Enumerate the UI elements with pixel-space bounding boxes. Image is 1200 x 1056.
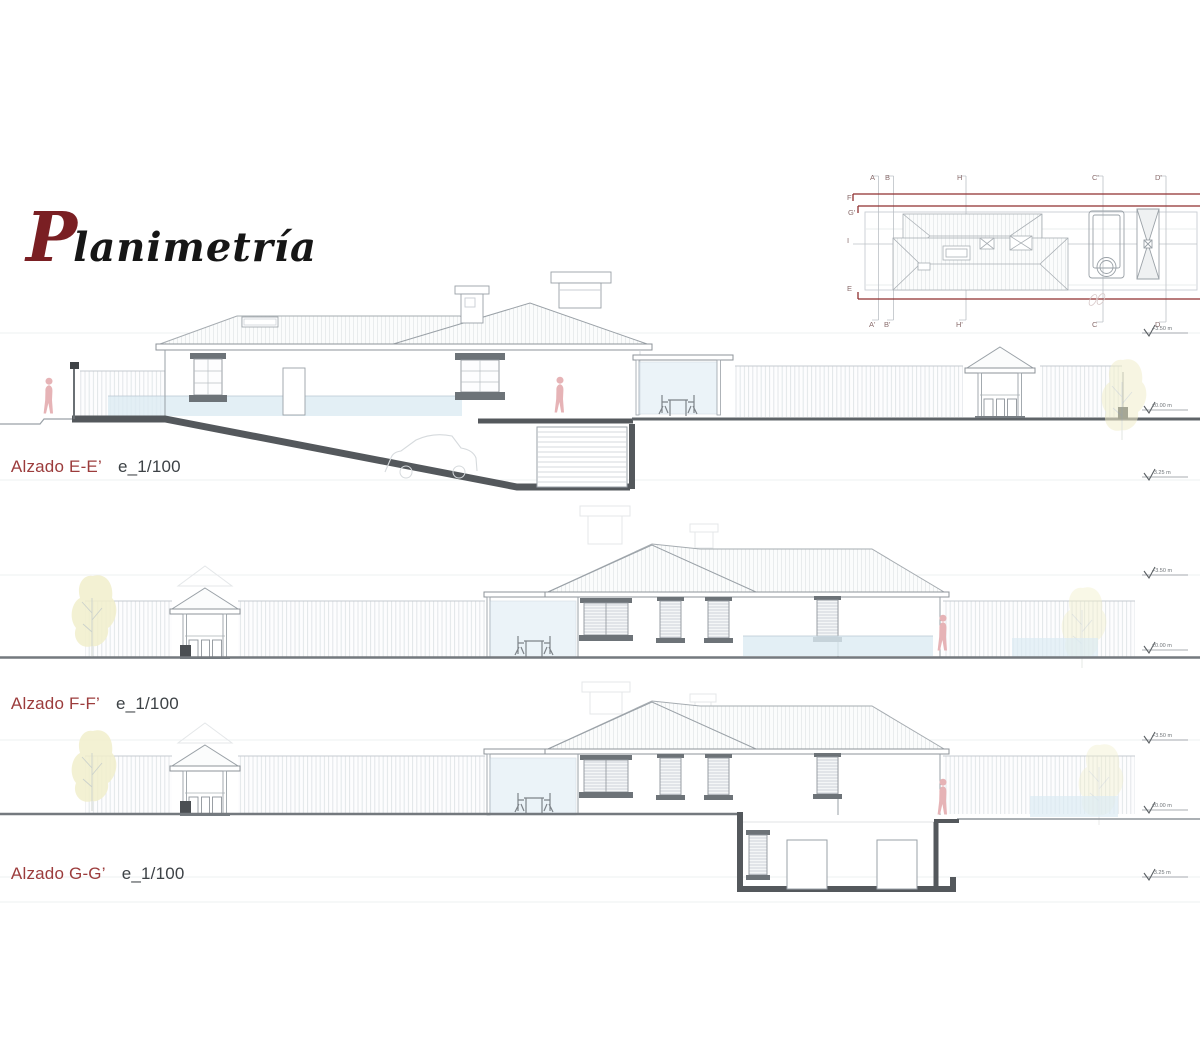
section-label: C' bbox=[1092, 173, 1099, 182]
person-figure bbox=[938, 779, 947, 815]
pergola-plan bbox=[1137, 209, 1159, 279]
level-label: +3.50 m bbox=[1152, 326, 1172, 332]
elevation-name: Alzado G-G’ bbox=[11, 864, 106, 883]
elevation-scale: e_1/100 bbox=[122, 864, 185, 883]
person-figure bbox=[555, 377, 564, 413]
pool-water bbox=[1012, 638, 1098, 657]
basement-door bbox=[787, 840, 827, 889]
plan-sheet: A B H C' D' A' B' H' C D F G' I E bbox=[0, 0, 1200, 1056]
elevation-f-label: Alzado F-F’e_1/100 bbox=[2, 674, 179, 714]
garage-door bbox=[537, 427, 627, 487]
section-label: B bbox=[885, 173, 890, 182]
elevation-g-label: Alzado G-G’e_1/100 bbox=[2, 844, 185, 884]
elevation-scale: e_1/100 bbox=[116, 694, 179, 713]
ghost-chimneys bbox=[580, 506, 718, 548]
door bbox=[283, 368, 305, 415]
section-label: A bbox=[870, 173, 875, 182]
basement-door bbox=[877, 840, 917, 889]
level-label: +3.50 m bbox=[1152, 733, 1172, 739]
level-label: ±0.00 m bbox=[1152, 643, 1172, 649]
bay-window bbox=[189, 353, 227, 402]
person-figure bbox=[44, 378, 53, 414]
pool-plan bbox=[1089, 211, 1124, 278]
section-label: I bbox=[847, 236, 849, 245]
roof-skylight bbox=[242, 317, 278, 327]
bay-window bbox=[455, 353, 505, 400]
elevation-scale: e_1/100 bbox=[118, 457, 181, 476]
level-label: -3.25 m bbox=[1152, 870, 1171, 876]
house-elevation-g bbox=[484, 701, 949, 815]
elevation-f bbox=[0, 506, 1200, 668]
section-label: F bbox=[847, 193, 852, 202]
bin bbox=[180, 645, 191, 658]
eave-cornice bbox=[156, 344, 652, 350]
basement-window bbox=[746, 830, 770, 880]
section-label: A' bbox=[869, 320, 876, 329]
section-label: G' bbox=[848, 208, 856, 217]
level-markers: +3.50 m ±0.00 m -3.25 m +3.50 m ±0.00 m … bbox=[1142, 325, 1188, 880]
section-label: H bbox=[957, 173, 962, 182]
roof-plan: A B H C' D' A' B' H' C D F G' I E bbox=[847, 173, 1200, 329]
glass-pool-fence bbox=[743, 636, 933, 656]
person-figure bbox=[938, 615, 947, 651]
pool-water bbox=[1030, 796, 1118, 817]
porch bbox=[633, 355, 733, 416]
bin bbox=[180, 801, 191, 814]
level-label: ±0.00 m bbox=[1152, 803, 1172, 809]
level-label: ±0.00 m bbox=[1152, 403, 1172, 409]
level-label: -3.25 m bbox=[1152, 470, 1171, 476]
entry-gate-kiosk bbox=[965, 347, 1035, 417]
section-label: B' bbox=[884, 320, 891, 329]
section-label: E bbox=[847, 284, 852, 293]
title-initial: P bbox=[26, 204, 77, 272]
section-label: C bbox=[1092, 320, 1098, 329]
level-label: +3.50 m bbox=[1152, 568, 1172, 574]
elevation-e-label: Alzado E-E’e_1/100 bbox=[2, 437, 181, 477]
roof-footprints bbox=[893, 214, 1068, 290]
ghost-kiosk-roof bbox=[178, 566, 232, 586]
sheet-title: Planimetría bbox=[26, 204, 317, 272]
drawing-area: A B H C' D' A' B' H' C D F G' I E bbox=[0, 0, 1200, 1056]
section-label: H' bbox=[956, 320, 963, 329]
title-text: lanimetría bbox=[73, 228, 317, 268]
section-label: D' bbox=[1155, 173, 1162, 182]
elevation-name: Alzado E-E’ bbox=[11, 457, 102, 476]
elevation-name: Alzado F-F’ bbox=[11, 694, 100, 713]
